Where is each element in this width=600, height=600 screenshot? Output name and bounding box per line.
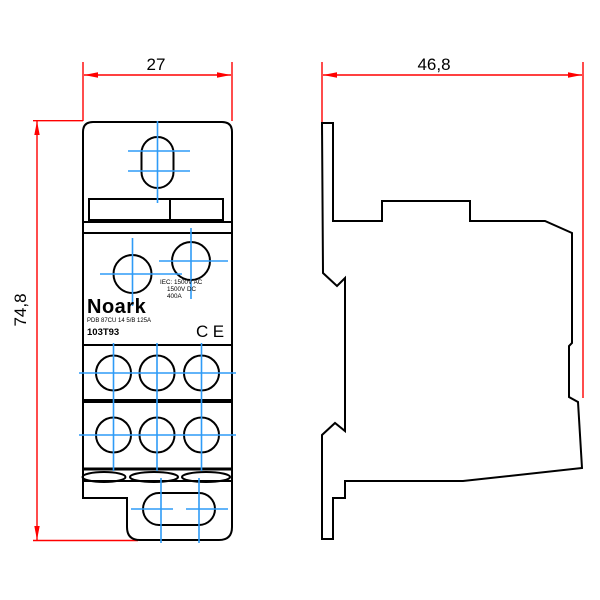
front-width-value: 27 (147, 55, 166, 74)
front-view: Noark IEC: 1500V AC 1500V DC 400A PDB 87… (79, 121, 236, 543)
technical-drawing-canvas: Noark IEC: 1500V AC 1500V DC 400A PDB 87… (0, 0, 600, 600)
side-view (322, 123, 582, 539)
rating-text: IEC: 1500V AC (160, 279, 203, 286)
model-text: PDB 87CU 14 5/B 125A (87, 318, 151, 324)
rating-text: 1500V DC (167, 286, 197, 293)
arrowhead-left-icon (84, 72, 98, 77)
arrowhead-left-icon (323, 72, 337, 77)
drawing-svg: Noark IEC: 1500V AC 1500V DC 400A PDB 87… (0, 0, 600, 600)
side-depth-value: 46,8 (417, 55, 450, 74)
arrowhead-up-icon (34, 121, 39, 135)
ce-mark: CE (196, 322, 229, 341)
rating-text: 400A (167, 293, 183, 300)
arrowhead-right-icon (568, 72, 582, 77)
height-value: 74,8 (11, 293, 30, 326)
arrowhead-right-icon (217, 72, 231, 77)
brand-logo: Noark (87, 296, 147, 318)
order-code-text: 103T93 (87, 327, 119, 338)
arrowhead-down-icon (34, 526, 39, 540)
side-view-outline (322, 123, 582, 539)
